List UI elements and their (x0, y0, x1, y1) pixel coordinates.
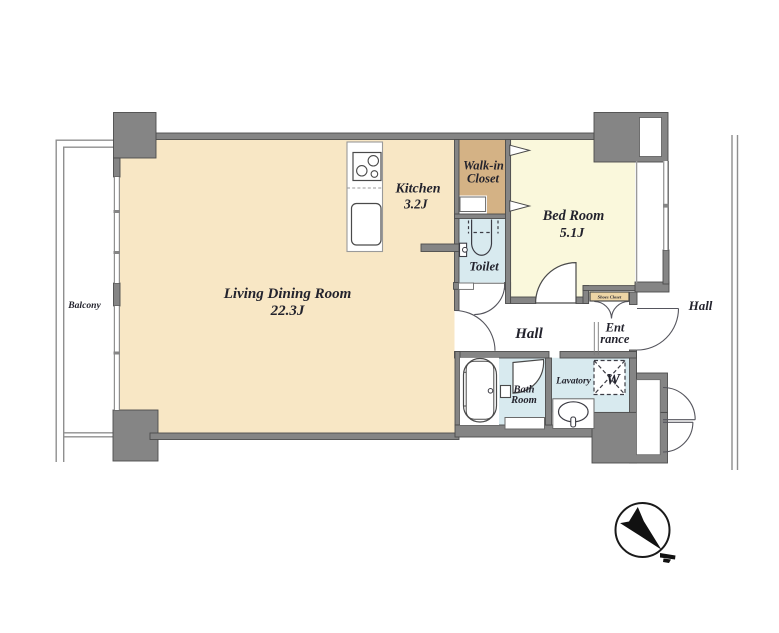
svg-text:22.3J: 22.3J (270, 303, 305, 319)
svg-text:3.2J: 3.2J (403, 197, 429, 212)
svg-text:Room: Room (510, 395, 537, 406)
svg-text:Hall: Hall (514, 326, 543, 342)
svg-text:Balcony: Balcony (67, 300, 101, 311)
svg-text:Closet: Closet (467, 171, 499, 185)
svg-text:5.1J: 5.1J (560, 226, 586, 241)
svg-text:Walk-in: Walk-in (463, 159, 504, 173)
svg-text:Kitchen: Kitchen (394, 182, 440, 197)
svg-text:Toilet: Toilet (469, 260, 499, 274)
svg-text:Hall: Hall (688, 298, 713, 313)
svg-text:Lavatory: Lavatory (555, 377, 592, 387)
svg-text:Shoes Closet: Shoes Closet (598, 294, 622, 299)
svg-text:Living Dining Room: Living Dining Room (223, 286, 352, 302)
svg-text:rance: rance (600, 332, 630, 346)
svg-text:W: W (606, 372, 621, 389)
svg-text:Bath: Bath (512, 384, 534, 395)
svg-text:Bed Room: Bed Room (542, 208, 605, 224)
